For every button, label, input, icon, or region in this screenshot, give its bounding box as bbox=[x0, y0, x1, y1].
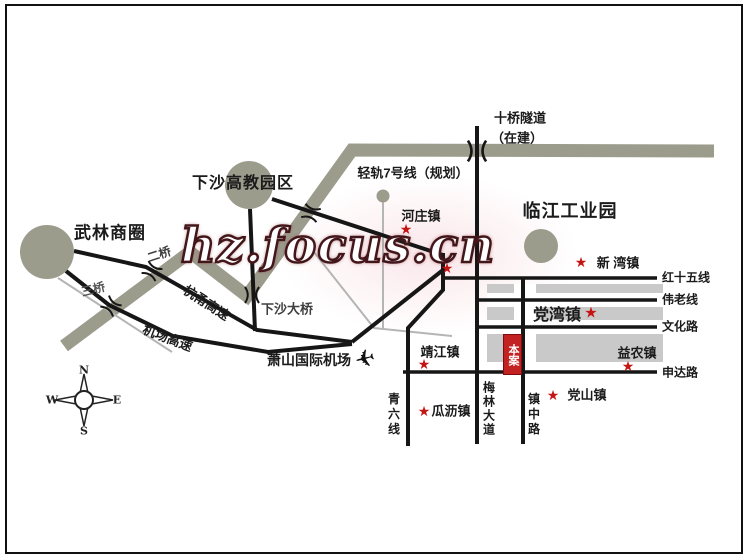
map-canvas: 武林商圈 下沙高教园区 临江工业园 轻轨7号线（规划） 十桥隧道 （在建） 二桥… bbox=[0, 0, 750, 560]
map-border bbox=[5, 4, 743, 554]
